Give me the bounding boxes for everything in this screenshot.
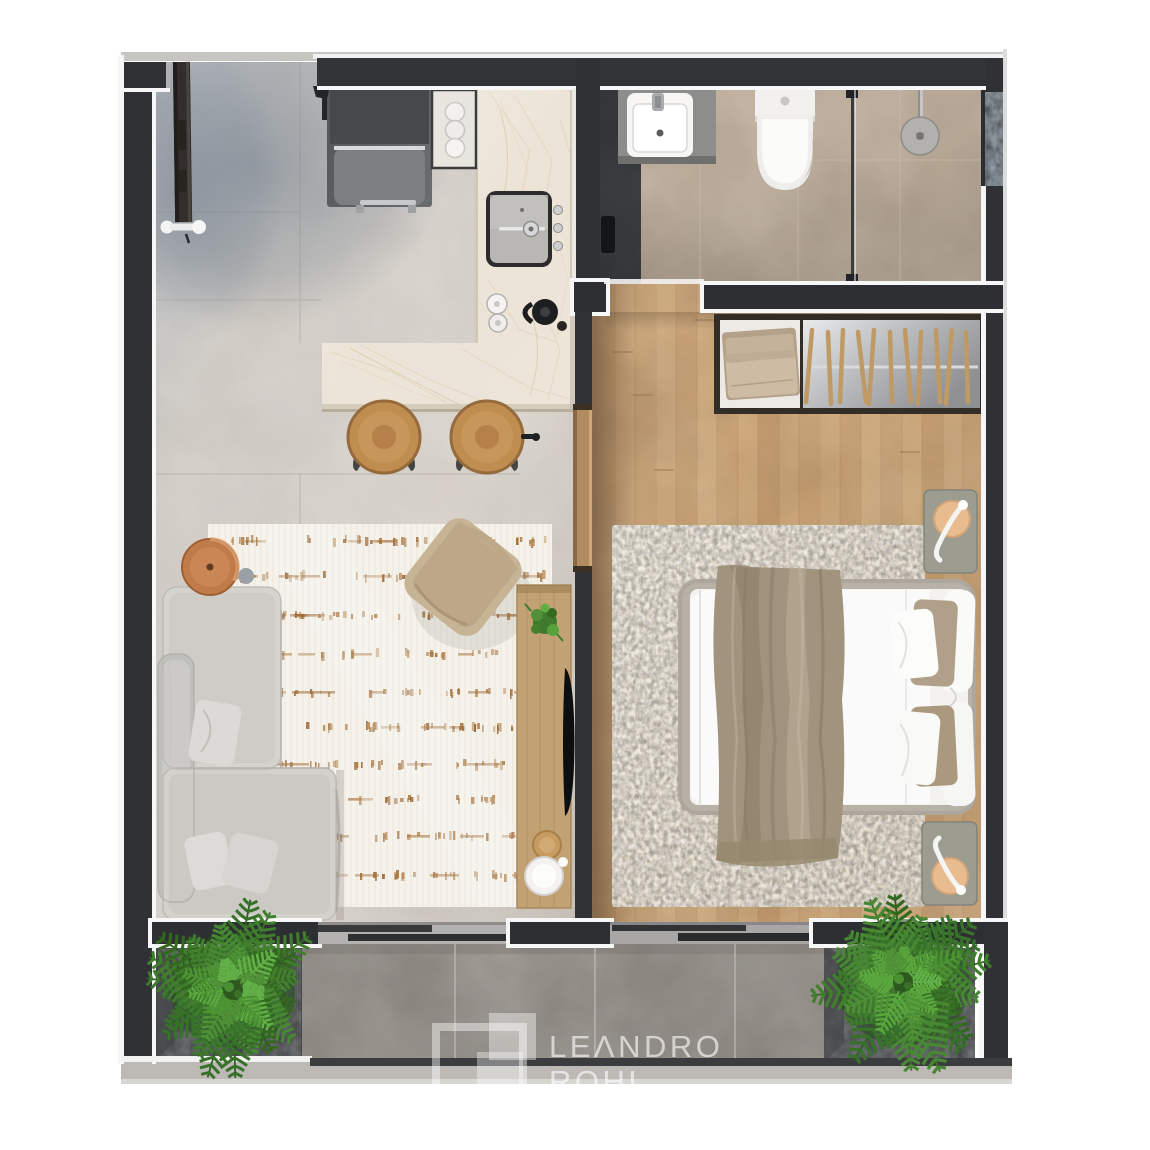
svg-text:LEΛNDRO: LEΛNDRO [549, 1029, 723, 1064]
